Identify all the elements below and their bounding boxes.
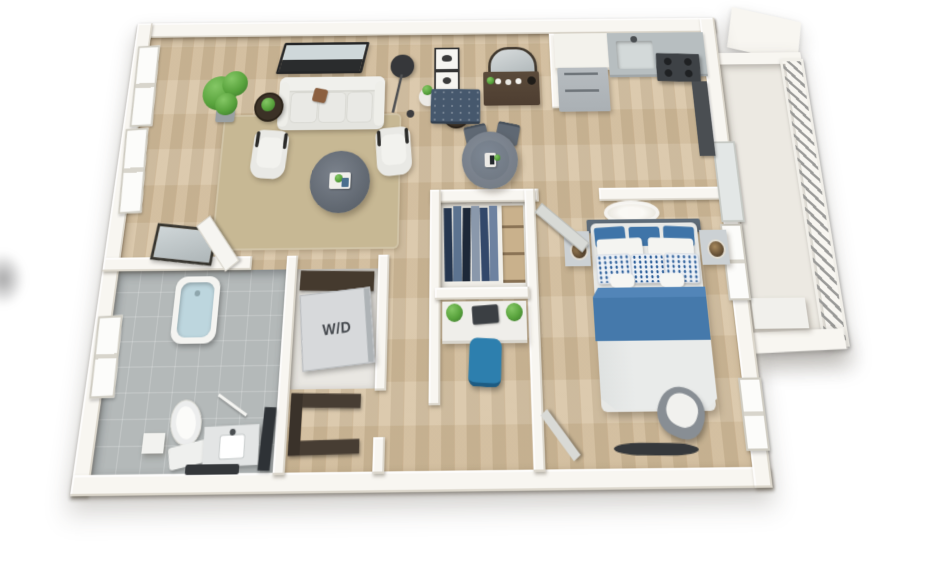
bed-pillow-lumbar <box>659 273 684 287</box>
sofa-arm-right <box>374 81 386 126</box>
wd-label: W/D <box>322 318 352 339</box>
hanging-garment <box>453 206 462 281</box>
tray-book <box>341 178 348 187</box>
bathroom-vanity <box>202 424 260 468</box>
laptop <box>472 304 500 325</box>
closet-shelves <box>501 205 525 282</box>
sofa <box>277 76 386 130</box>
chair-seat <box>381 133 407 166</box>
kitchen-upper-cabinet <box>554 33 610 70</box>
hanging-garment <box>489 206 499 281</box>
stove <box>655 53 701 82</box>
bathtub <box>169 276 221 344</box>
balcony-shelf <box>751 298 809 329</box>
armchair-seat <box>663 388 702 432</box>
sofa-cushion <box>346 92 373 123</box>
console-table <box>483 71 540 105</box>
desk-chair <box>468 337 502 387</box>
closet-clothes-rack <box>444 206 503 284</box>
bathroom-hamper <box>141 433 165 454</box>
fridge-handle <box>565 89 599 92</box>
chair-seat <box>255 137 284 169</box>
potted-plant <box>200 71 253 122</box>
frame-art <box>443 77 451 84</box>
desk-plant <box>506 303 523 322</box>
fridge-handle <box>564 72 598 75</box>
refrigerator <box>557 67 611 111</box>
sofa-back <box>279 76 385 92</box>
bed-comforter <box>592 287 710 342</box>
hanging-garment <box>462 208 471 281</box>
balcony-lower-ledge <box>749 328 846 354</box>
console-plant <box>487 77 495 85</box>
scene: W/D <box>0 0 940 579</box>
tv <box>276 42 370 74</box>
washer-dryer-unit: W/D <box>300 287 375 372</box>
kitchen-sink <box>616 41 655 69</box>
bath-mat <box>185 464 240 475</box>
floorplan-canvas: W/D <box>0 0 940 579</box>
vanity-sink <box>218 434 245 460</box>
sink-faucet <box>630 36 637 43</box>
bedroom-floor-mat <box>614 443 700 456</box>
wall-mid-right <box>599 187 721 201</box>
console-bowl <box>527 76 536 84</box>
chair-arm-bar <box>282 133 288 149</box>
toilet <box>165 396 208 474</box>
wall-linen-stub <box>372 437 385 474</box>
table-lamp <box>706 239 726 259</box>
frame-art <box>442 55 452 62</box>
hanging-garment <box>444 208 453 282</box>
area-rug <box>211 113 402 250</box>
apartment-plan: W/D <box>68 17 875 511</box>
wall-closet-divider <box>435 287 530 300</box>
nightstand-right <box>699 230 730 265</box>
side-table-plant <box>261 98 276 112</box>
tufted-bench <box>430 89 480 124</box>
wall-mid-left <box>430 189 539 203</box>
accent-chair-right <box>375 126 413 177</box>
table-greenery <box>494 154 500 160</box>
wall-art-frame <box>434 48 459 71</box>
bed-pillow-lumbar <box>610 273 635 287</box>
console-cups <box>495 78 501 84</box>
